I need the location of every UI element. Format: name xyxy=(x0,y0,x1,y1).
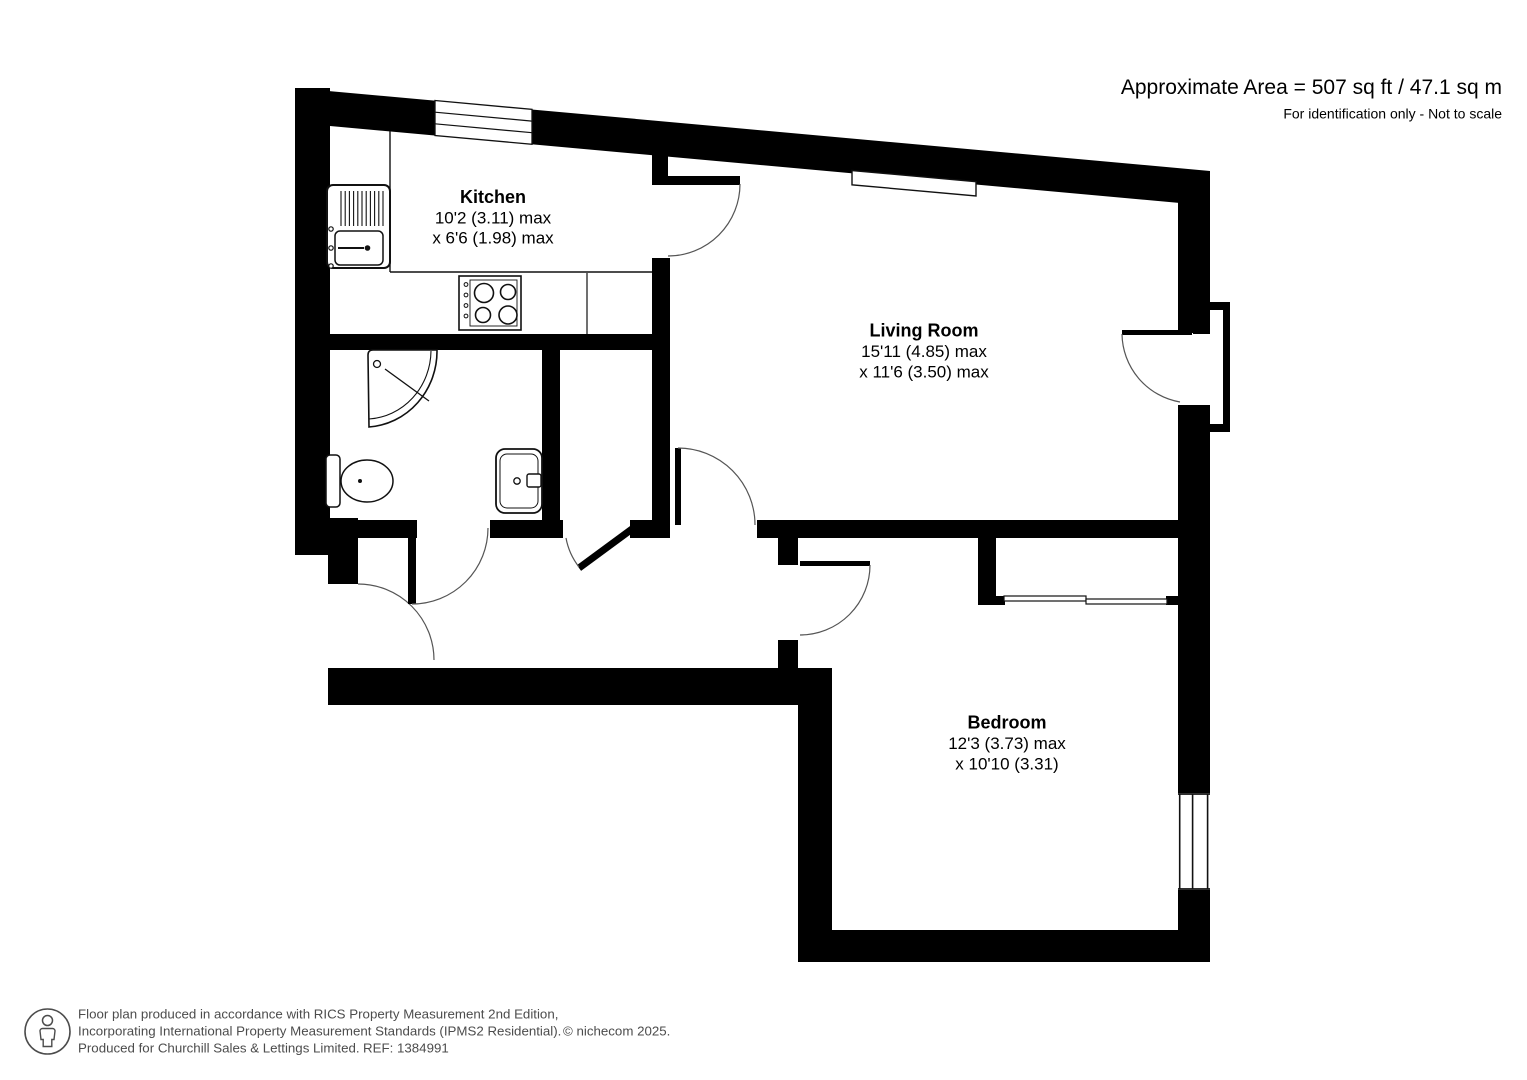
bedroom-label: Bedroom 12'3 (3.73) max x 10'10 (3.31) xyxy=(948,713,1066,774)
wall-cupboard-stub-left xyxy=(542,520,563,538)
living-room-label: Living Room 15'11 (4.85) max x 11'6 (3.5… xyxy=(859,321,989,382)
living-room-dim1: 15'11 (4.85) max xyxy=(861,342,987,361)
balcony-door-leaf xyxy=(1122,330,1192,335)
wall-left xyxy=(295,88,330,555)
balcony-door-gap xyxy=(1178,333,1210,405)
kitchen-door xyxy=(668,176,740,256)
hob-burner xyxy=(476,308,491,323)
hob-knob xyxy=(464,304,468,308)
hob-knob xyxy=(464,293,468,297)
hob-burner xyxy=(499,306,517,324)
footer: Floor plan produced in accordance with R… xyxy=(25,1007,670,1056)
kitchen-window xyxy=(435,101,532,145)
wall-wardrobe-stub xyxy=(978,538,996,598)
shower-head xyxy=(374,361,381,368)
wall-kitchen-east-stub xyxy=(652,152,668,185)
disclaimer-text: For identification only - Not to scale xyxy=(1283,106,1502,122)
living-room-door-arc xyxy=(678,448,755,525)
floorplan-canvas: Kitchen 10'2 (3.11) max x 6'6 (1.98) max… xyxy=(0,0,1527,1080)
kitchen-sink xyxy=(327,185,390,268)
footer-copyright: © nichecom 2025. xyxy=(563,1024,670,1039)
wall-wardrobe-foot-left xyxy=(978,596,1005,605)
bathroom-door-arc xyxy=(412,528,488,604)
bedroom-door-arc xyxy=(800,565,870,635)
kitchen-window-frame xyxy=(435,101,532,145)
wall-kitchen-east-main xyxy=(652,258,670,538)
wardrobe-door-panel xyxy=(1004,596,1086,601)
kitchen-name: Kitchen xyxy=(460,187,526,207)
logo-head xyxy=(43,1016,53,1026)
kitchen-hob xyxy=(459,276,521,330)
basin-tap xyxy=(527,474,541,487)
wall-cupboard-stub-right xyxy=(630,520,652,538)
wall-wardrobe-foot-right xyxy=(1166,596,1178,605)
wall-hall-band-a xyxy=(330,520,417,538)
footer-line3-text: Produced for Churchill Sales & Lettings … xyxy=(78,1041,360,1056)
walls xyxy=(295,88,1210,962)
entrance-door xyxy=(358,584,434,660)
floorplan-page: Kitchen 10'2 (3.11) max x 6'6 (1.98) max… xyxy=(0,0,1527,1080)
living-room-door xyxy=(675,448,755,525)
wall-bedroom-west xyxy=(798,673,832,962)
hob-knob xyxy=(464,314,468,318)
shower xyxy=(368,350,437,427)
hob-knob xyxy=(464,283,468,287)
footer-line2: Incorporating International Property Mea… xyxy=(78,1024,670,1039)
balcony-recess-side xyxy=(1223,302,1230,432)
kitchen-door-leaf xyxy=(668,176,740,185)
doors xyxy=(358,176,1192,660)
living-room-door-leaf xyxy=(675,448,681,525)
wall-bedroom-stub-upper xyxy=(778,538,798,565)
kitchen-dim2: x 6'6 (1.98) max xyxy=(432,229,554,248)
kitchen-door-arc xyxy=(668,184,740,256)
footer-line2-text: Incorporating International Property Mea… xyxy=(78,1024,561,1039)
entrance-door-arc xyxy=(358,584,434,660)
header: Approximate Area = 507 sq ft / 47.1 sq m… xyxy=(1121,76,1502,122)
cupboard-door xyxy=(566,529,632,568)
balcony-door-step xyxy=(1193,327,1210,334)
toilet xyxy=(326,455,393,507)
footer-line3: Produced for Churchill Sales & Lettings … xyxy=(78,1041,449,1056)
bedroom-window-gap xyxy=(1178,793,1210,890)
basin xyxy=(496,449,542,513)
hob-burner xyxy=(501,285,516,300)
wall-hall-band-b xyxy=(490,520,542,538)
kitchen-label: Kitchen 10'2 (3.11) max x 6'6 (1.98) max xyxy=(432,187,554,248)
bedroom-name: Bedroom xyxy=(967,713,1046,733)
footer-line1: Floor plan produced in accordance with R… xyxy=(78,1007,558,1022)
balcony-door-arc xyxy=(1122,334,1180,402)
bathroom-door xyxy=(408,528,488,604)
bedroom-dim1: 12'3 (3.73) max xyxy=(948,734,1066,753)
bedroom-wardrobe-sliding-doors xyxy=(1004,596,1167,604)
cupboard-door-arc xyxy=(566,538,579,567)
bathroom-door-leaf xyxy=(408,528,416,604)
bedroom-door xyxy=(800,561,870,635)
sink-tap-dot xyxy=(365,245,371,251)
kitchen-dim1: 10'2 (3.11) max xyxy=(435,209,552,228)
sink-knob xyxy=(329,264,333,268)
bedroom-dim2: x 10'10 (3.31) xyxy=(955,755,1058,774)
wall-livingroom-south xyxy=(757,520,1178,538)
bedroom-door-leaf xyxy=(800,561,870,566)
wall-hall-bottom xyxy=(328,668,832,705)
balcony-recess-bottom xyxy=(1208,424,1230,432)
living-room-name: Living Room xyxy=(870,321,979,341)
sink-knob xyxy=(329,227,333,231)
footer-ref: REF: 1384991 xyxy=(363,1041,449,1056)
basin-tap-dot xyxy=(514,478,520,484)
wardrobe-door-panel xyxy=(1086,599,1167,604)
hob-burner xyxy=(475,284,494,303)
bedroom-window xyxy=(1178,793,1210,890)
sink-knob xyxy=(329,246,333,250)
logo-body xyxy=(40,1029,55,1047)
approximate-area-text: Approximate Area = 507 sq ft / 47.1 sq m xyxy=(1121,76,1502,99)
wall-bathroom-east xyxy=(542,348,560,538)
wall-bedroom-bottom xyxy=(798,930,1210,962)
toilet-bowl xyxy=(341,460,393,502)
wall-kitchen-south xyxy=(330,334,668,350)
person-logo-icon xyxy=(25,1009,70,1054)
wall-top-sloped xyxy=(295,88,1210,206)
living-room-dim2: x 11'6 (3.50) max xyxy=(859,363,989,382)
toilet-flush-dot xyxy=(358,479,362,483)
toilet-cistern xyxy=(326,455,340,507)
cupboard-door-leaf xyxy=(579,529,632,568)
